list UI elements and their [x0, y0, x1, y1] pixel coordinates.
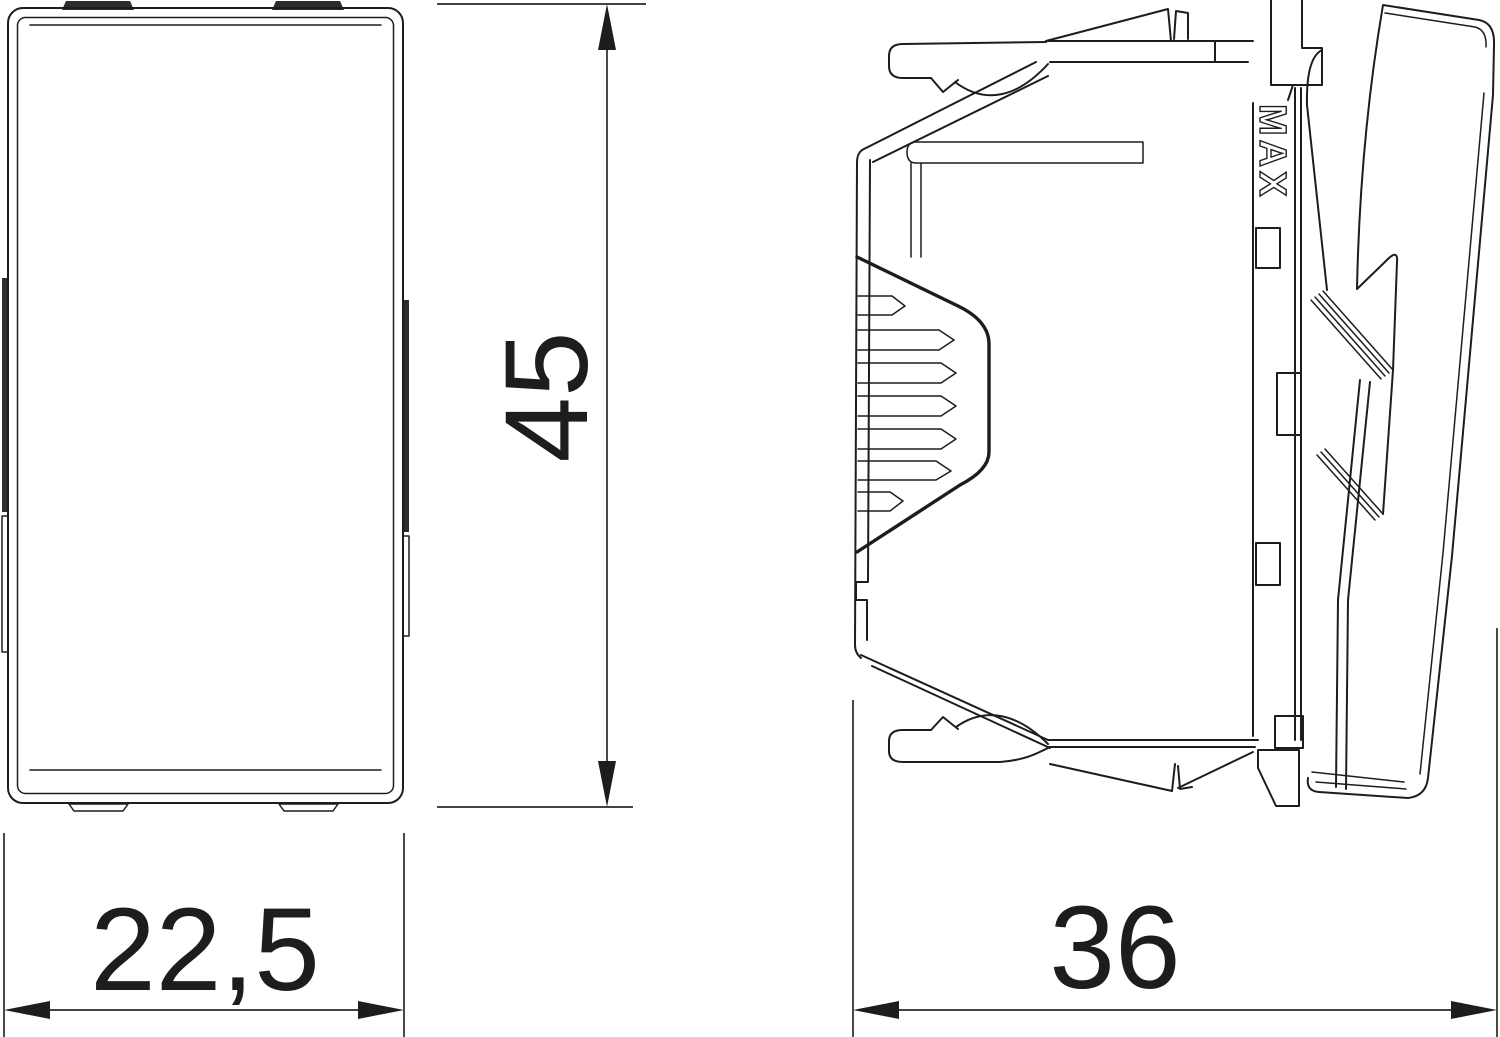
front-side-clips-dark — [2, 278, 409, 532]
rocker-outline — [1308, 5, 1494, 798]
side-clamp-fins — [858, 296, 956, 511]
dim-height-arrow-up-icon — [598, 4, 616, 50]
dim-depth-arrow-left-icon — [853, 1001, 899, 1019]
dimension-width: 22,5 — [4, 833, 404, 1037]
dim-width-label: 22,5 — [90, 884, 320, 1016]
side-view: MAX — [855, 0, 1327, 806]
side-top-strut — [862, 62, 1048, 162]
rocker-fold-edge — [1357, 255, 1397, 514]
side-left-wall — [855, 150, 870, 658]
dim-depth-arrow-right-icon — [1451, 1001, 1497, 1019]
side-bottom-strut — [861, 655, 1050, 748]
rocker-skirt — [1336, 380, 1370, 789]
technical-drawing-page: MAX 45 22,5 36 — [0, 0, 1500, 1037]
front-chamfer-lines — [30, 25, 381, 770]
switch-dimension-drawing: MAX 45 22,5 36 — [0, 0, 1500, 1037]
dimension-depth: 36 — [853, 628, 1497, 1037]
side-pivot-post — [1271, 0, 1322, 100]
side-top-rim — [1046, 9, 1253, 62]
front-inner-frame — [18, 18, 394, 794]
front-bottom-tabs — [69, 804, 338, 811]
front-view — [2, 1, 409, 811]
dimension-height: 45 — [437, 4, 646, 807]
side-bottom-claw — [889, 715, 1048, 762]
dim-width-arrow-right-icon — [358, 1001, 404, 1019]
max-marking-label: MAX — [1251, 104, 1293, 200]
dim-depth-label: 36 — [1049, 882, 1180, 1014]
dim-height-label: 45 — [481, 331, 613, 462]
side-bottom-feet — [1258, 716, 1303, 806]
dim-width-arrow-left-icon — [4, 1001, 50, 1019]
front-side-clips-outline — [2, 516, 409, 652]
rocker-upper-hatch — [1311, 291, 1393, 379]
front-outer-frame — [8, 8, 403, 803]
rocker-button — [1308, 5, 1494, 798]
side-clamp-housing — [857, 257, 989, 552]
side-bottom-rim — [1048, 740, 1258, 791]
side-internal-shelf — [907, 142, 1143, 257]
dim-height-arrow-down-icon — [598, 761, 616, 807]
